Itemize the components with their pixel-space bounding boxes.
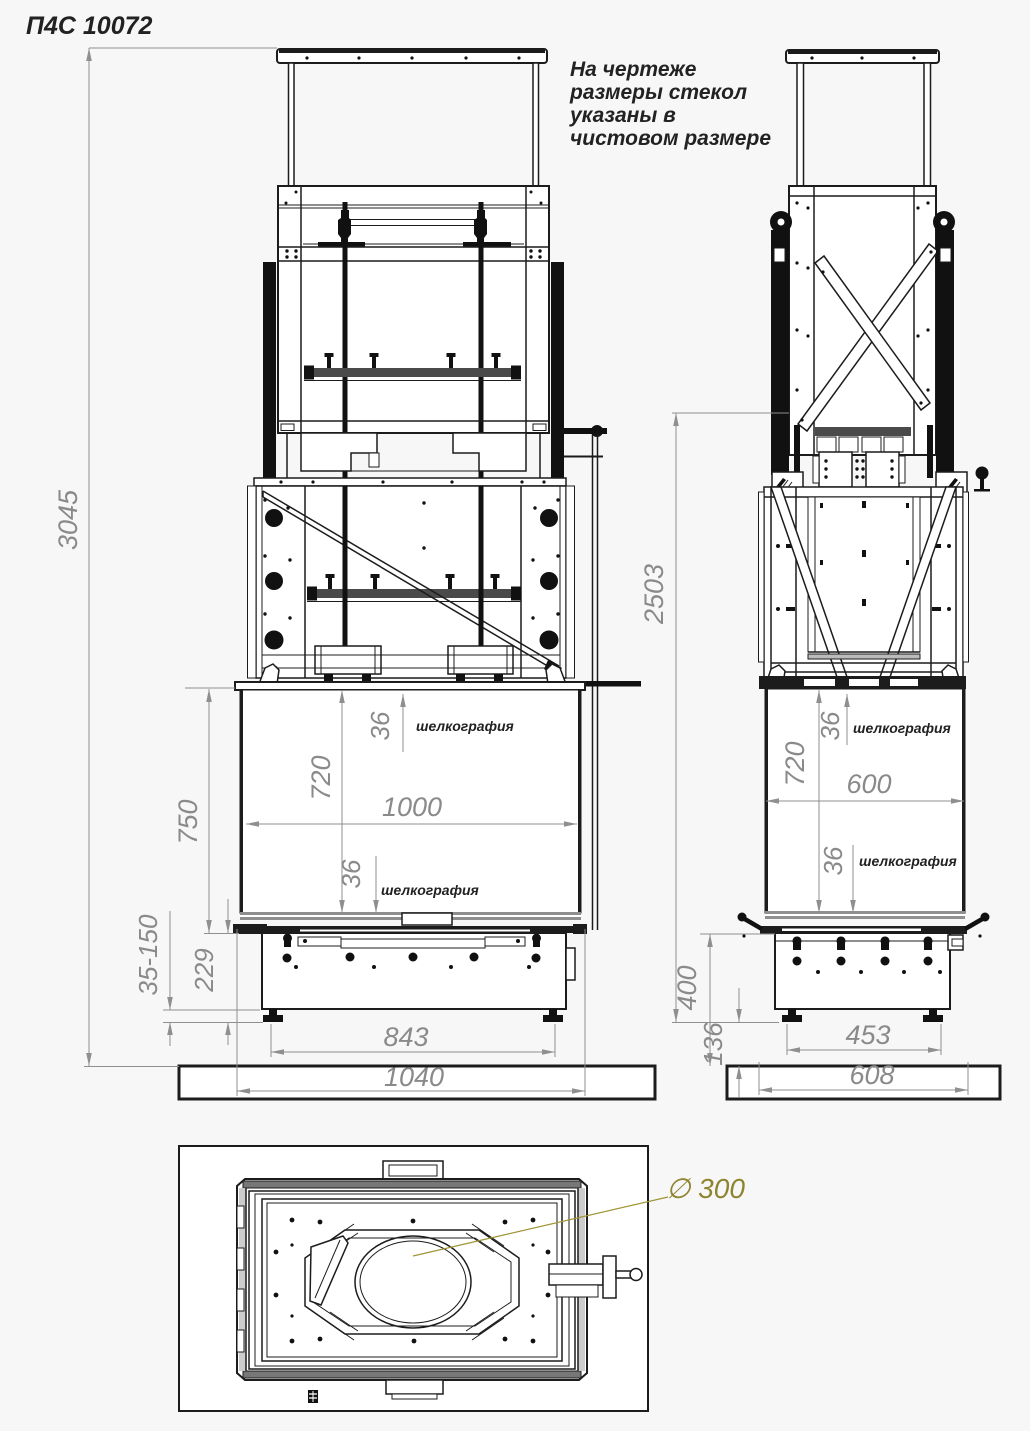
svg-text:2503: 2503: [639, 564, 669, 625]
svg-text:1000: 1000: [382, 792, 442, 822]
svg-text:размеры стекол: размеры стекол: [569, 81, 747, 104]
svg-text:шелкография: шелкография: [416, 718, 514, 734]
svg-text:∅ 300: ∅ 300: [666, 1173, 745, 1204]
svg-text:720: 720: [306, 755, 336, 800]
svg-text:229: 229: [189, 948, 219, 992]
svg-text:720: 720: [780, 741, 810, 786]
svg-text:36: 36: [815, 711, 845, 740]
svg-text:П4С 10072: П4С 10072: [26, 12, 153, 40]
svg-text:чистовом размере: чистовом размере: [570, 127, 771, 150]
svg-text:1040: 1040: [384, 1062, 444, 1092]
svg-text:608: 608: [849, 1060, 894, 1090]
svg-text:36: 36: [336, 859, 366, 888]
svg-text:шелкография: шелкография: [859, 853, 957, 869]
svg-text:36: 36: [365, 711, 395, 740]
svg-text:шелкография: шелкография: [853, 720, 951, 736]
svg-text:35-150: 35-150: [133, 914, 163, 995]
svg-text:400: 400: [672, 965, 702, 1010]
svg-text:3045: 3045: [53, 489, 83, 550]
svg-text:шелкография: шелкография: [381, 882, 479, 898]
svg-text:указаны в: указаны в: [569, 104, 676, 127]
svg-text:На чертеже: На чертеже: [570, 58, 697, 81]
svg-text:136: 136: [698, 1022, 728, 1066]
svg-text:843: 843: [383, 1022, 428, 1052]
svg-text:36: 36: [818, 846, 848, 875]
svg-text:453: 453: [845, 1020, 890, 1050]
svg-text:750: 750: [173, 799, 203, 844]
svg-text:600: 600: [846, 769, 891, 799]
